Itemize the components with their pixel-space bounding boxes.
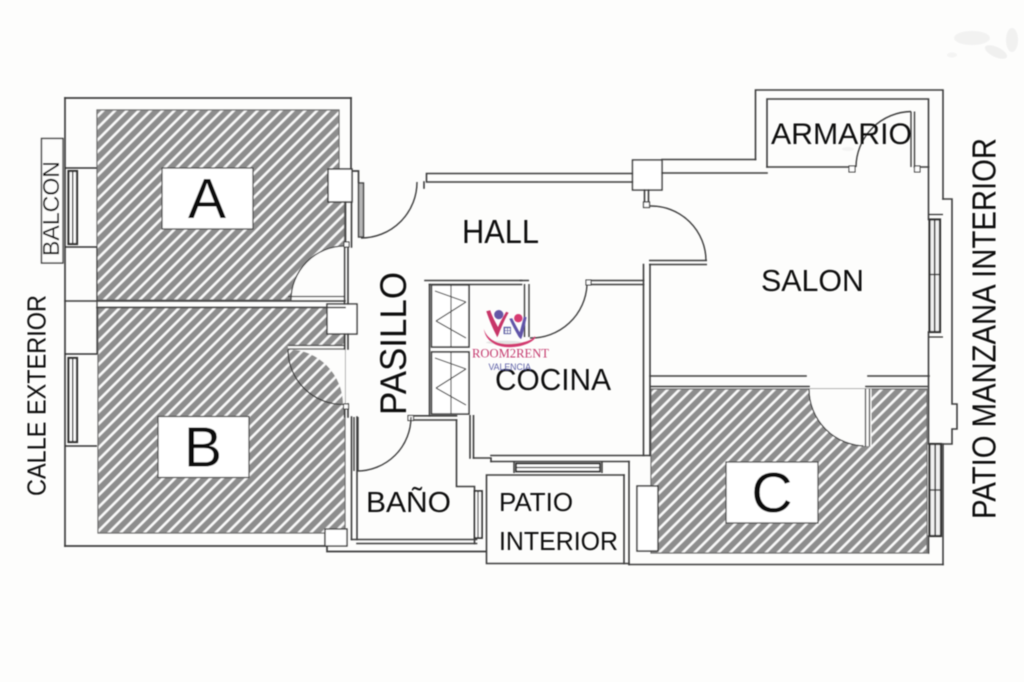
svg-text:A: A <box>188 167 226 231</box>
svg-text:BALCON: BALCON <box>38 161 64 256</box>
svg-text:SALON: SALON <box>761 263 864 298</box>
svg-text:CALLE EXTERIOR: CALLE EXTERIOR <box>22 295 52 496</box>
svg-text:C: C <box>751 461 792 525</box>
svg-text:B: B <box>184 416 222 480</box>
svg-text:ROOM2RENT: ROOM2RENT <box>472 346 549 361</box>
svg-text:ARMARIO: ARMARIO <box>771 118 912 151</box>
svg-text:PASILLO: PASILLO <box>373 272 414 415</box>
svg-text:PATIO: PATIO <box>499 489 573 517</box>
svg-text:BAÑO: BAÑO <box>366 485 451 519</box>
svg-text:INTERIOR: INTERIOR <box>499 528 618 556</box>
svg-text:HALL: HALL <box>462 213 539 250</box>
svg-text:PATIO MANZANA INTERIOR: PATIO MANZANA INTERIOR <box>966 138 1003 519</box>
svg-text:VALENCIA: VALENCIA <box>489 362 532 373</box>
